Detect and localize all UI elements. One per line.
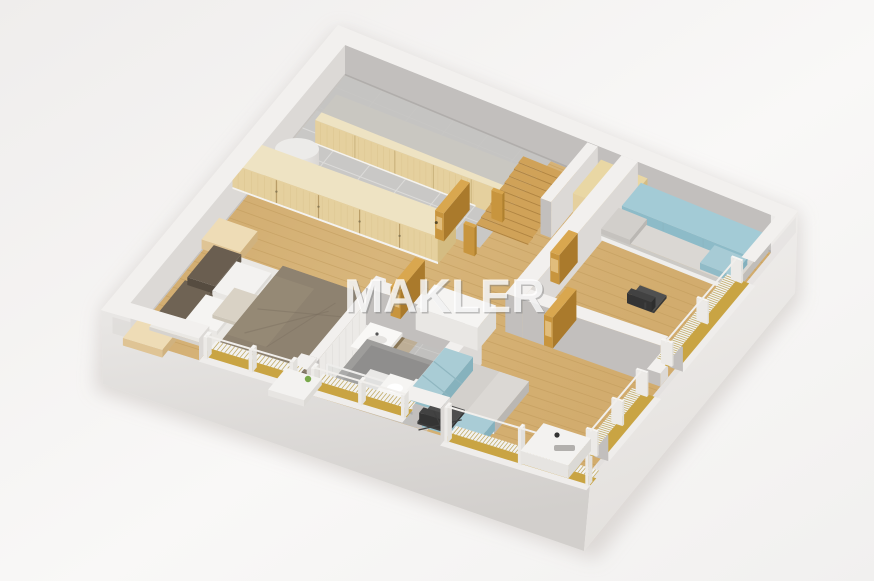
svg-text:MAKLER: MAKLER [344, 269, 545, 322]
